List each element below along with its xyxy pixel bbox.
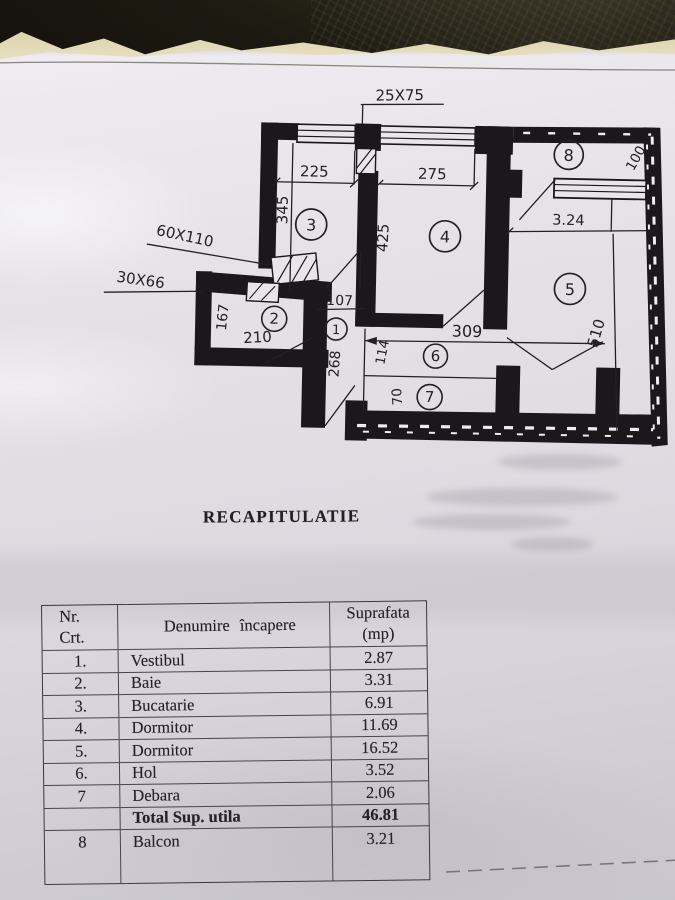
cell-nr: 7 [44, 785, 120, 807]
dim-324: 3.24 [552, 213, 585, 230]
cell-nr: 2. [43, 673, 119, 695]
header-nr-line2: Crt. [59, 627, 84, 648]
window-kitchen-top [297, 124, 355, 143]
wall-bedroom4-bottom-stub [355, 312, 443, 328]
cell-area: 46.81 [332, 804, 428, 827]
photo-of-floor-plan-document: 25X75 60X110 30X66 225 275 345 425 3.24 … [0, 0, 675, 900]
wall-debara-right-pillar [495, 365, 520, 415]
dim-line-309 [365, 339, 605, 346]
cell-name: Bucatarie [119, 692, 331, 716]
window-balcony-room5 [554, 179, 646, 200]
cell-name: Dormitor [120, 737, 332, 761]
cell-area: 2.06 [332, 781, 428, 804]
header-area-line2: (mp) [362, 624, 394, 645]
dim-line-275 [379, 184, 474, 186]
header-area: Suprafata (mp) [330, 601, 427, 646]
header-area-line1: Suprafata [346, 603, 409, 624]
room-circle-8: 8 [554, 140, 584, 170]
cell-name: Dormitor [119, 715, 331, 739]
cell-nr: 5. [44, 740, 120, 762]
cell-nr: 6. [44, 763, 120, 785]
header-nr: Nr. Crt. [42, 605, 119, 650]
wall-balcony-top [513, 125, 655, 146]
line-bedroom4-extension [474, 149, 475, 186]
floor-plan: 25X75 60X110 30X66 225 275 345 425 3.24 … [101, 79, 675, 447]
window-bedroom4-top [380, 126, 475, 146]
recap-heading: RECAPITULATIE [203, 506, 360, 527]
wall-balcony-door-stub [508, 170, 523, 198]
header-nr-line1: Nr. [59, 607, 80, 628]
svg-text:6: 6 [431, 347, 441, 365]
cell-name: Balcon [121, 827, 334, 883]
pencil-line-top [0, 62, 675, 70]
svg-text:1: 1 [332, 323, 341, 338]
cell-area: 2.87 [331, 646, 427, 669]
table-header-row: Nr. Crt. Denumire încapere Suprafata (mp… [42, 601, 427, 651]
label-30x66: 30X66 [115, 268, 166, 293]
dim-268: 268 [326, 350, 344, 378]
dim-225: 225 [300, 162, 329, 181]
cell-area: 3.21 [333, 826, 430, 880]
wall-entrance-pillar [345, 400, 368, 440]
dim-275: 275 [418, 165, 447, 184]
cell-nr: 1. [43, 650, 119, 672]
cell-area: 3.52 [332, 759, 428, 782]
room-circle-2: 2 [262, 306, 288, 332]
cell-name: Total Sup. utila [120, 805, 332, 829]
window-25x75-hatched [356, 148, 376, 173]
room-circle-4: 4 [429, 220, 461, 252]
header-name: Denumire încapere [118, 602, 331, 649]
svg-text:8: 8 [563, 146, 574, 165]
cell-nr: 8 [45, 830, 122, 884]
label-25x75-leader [360, 103, 443, 127]
window-60x110-hatched [271, 253, 318, 284]
dim-210: 210 [243, 328, 272, 347]
label-25x75: 25X75 [375, 86, 424, 105]
recap-table: Nr. Crt. Denumire încapere Suprafata (mp… [41, 600, 430, 885]
wall-between-4-and-5 [483, 126, 511, 329]
door-swing-balcony [519, 179, 555, 221]
dim-309: 309 [452, 321, 483, 341]
door-swing-kitchen [326, 250, 360, 290]
wall-top-pier [355, 123, 382, 151]
line-room5-extension [611, 199, 612, 232]
svg-text:5: 5 [565, 280, 576, 299]
dim-70: 70 [389, 388, 406, 406]
room-circle-5: 5 [554, 273, 586, 305]
cell-nr: 4. [43, 718, 119, 740]
cell-name: Debara [120, 782, 332, 806]
wall-vestibule-left [301, 293, 328, 427]
line-kitchen-extension-2 [354, 150, 355, 184]
dim-line-225 [276, 182, 354, 184]
svg-text:7: 7 [425, 388, 435, 406]
cell-nr: 3. [43, 695, 119, 717]
dim-107: 107 [326, 293, 353, 310]
room-circle-6: 6 [423, 344, 447, 368]
line-hol-debara-divider [364, 376, 496, 379]
room-circle-7: 7 [417, 384, 443, 410]
svg-text:3: 3 [306, 215, 317, 234]
cell-area: 11.69 [331, 714, 427, 737]
svg-text:2: 2 [269, 310, 279, 328]
cell-nr [44, 808, 120, 830]
room-circle-1: 1 [325, 318, 347, 340]
window-30x66-hatched [246, 282, 279, 303]
wall-right-exterior [637, 127, 675, 447]
cell-area: 6.91 [331, 691, 427, 714]
cell-name: Baie [119, 670, 331, 694]
door-leaf-kitchen [360, 251, 361, 290]
cell-name: Vestibul [119, 647, 331, 671]
bleed-through-text [412, 454, 622, 551]
dim-425: 425 [373, 223, 393, 253]
dim-510: 510 [584, 317, 609, 350]
room-circle-3: 3 [295, 209, 327, 241]
line-hol-left-boundary [363, 329, 365, 411]
table-row: 8 Balcon 3.21 [45, 826, 430, 884]
svg-text:4: 4 [440, 227, 451, 246]
dim-345: 345 [273, 195, 292, 224]
cell-name: Hol [120, 760, 332, 784]
cell-area: 3.31 [331, 669, 427, 692]
cell-area: 16.52 [332, 736, 428, 759]
dim-167: 167 [214, 303, 233, 331]
pencil-dashed-line-bottom [446, 860, 675, 872]
